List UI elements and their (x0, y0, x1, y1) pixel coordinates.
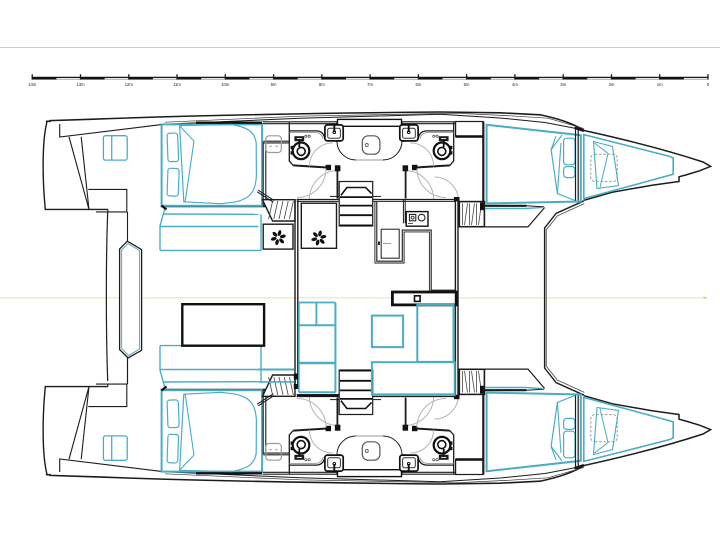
svg-text:3m: 3m (560, 82, 566, 87)
svg-text:7m: 7m (367, 82, 373, 87)
svg-text:14m: 14m (28, 82, 37, 87)
svg-text:11m: 11m (173, 82, 181, 87)
svg-text:2m: 2m (609, 82, 615, 87)
svg-text:1m: 1m (657, 82, 663, 87)
svg-text:6m: 6m (415, 82, 421, 87)
svg-text:5m: 5m (464, 82, 470, 87)
svg-text:13m: 13m (76, 82, 85, 87)
svg-text:4m: 4m (512, 82, 518, 87)
svg-text:8m: 8m (319, 82, 325, 87)
svg-text:10m: 10m (221, 82, 230, 87)
svg-text:12m: 12m (125, 82, 134, 87)
svg-text:9m: 9m (271, 82, 277, 87)
